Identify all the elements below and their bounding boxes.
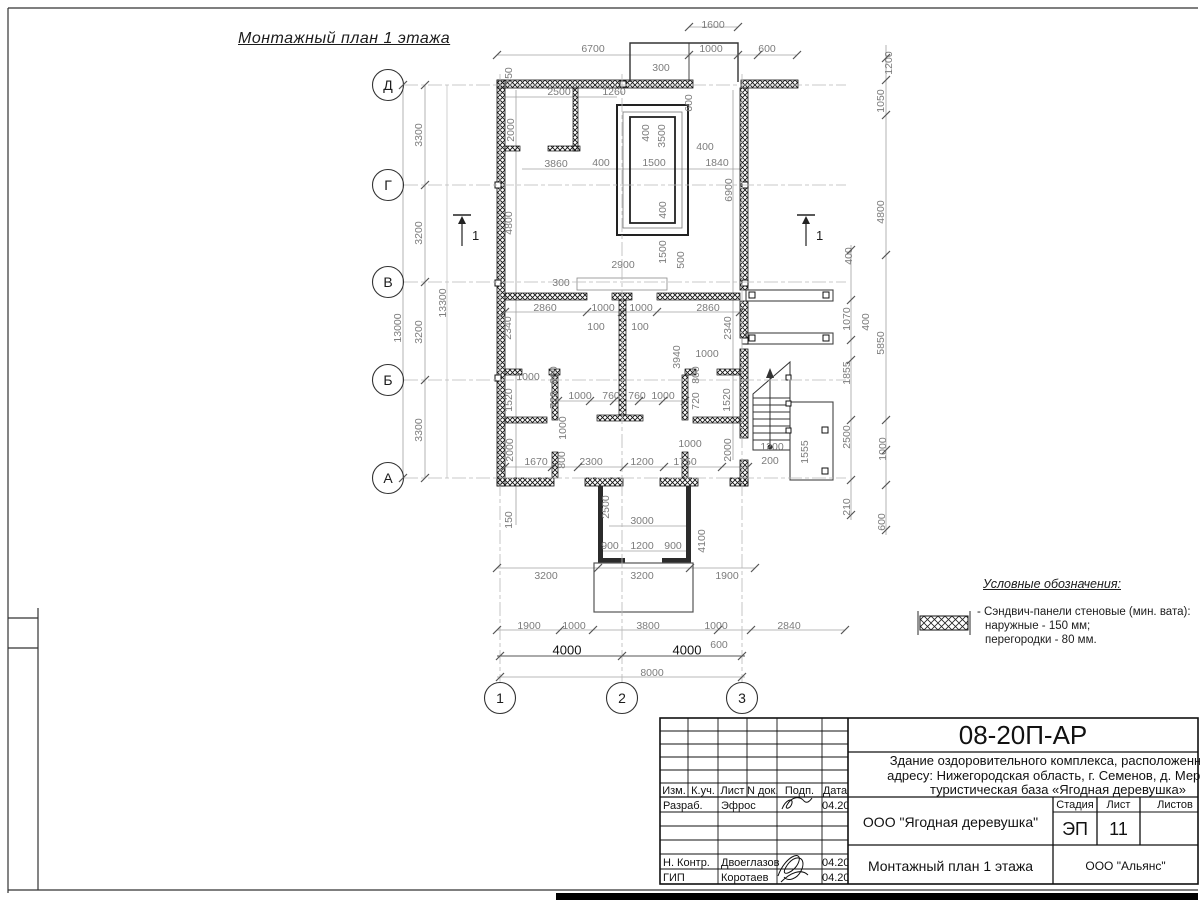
legend-line-1: - Сэндвич-панели стеновые (мин. вата):: [977, 605, 1191, 619]
dimension-label: 900: [601, 540, 619, 552]
dimension-label: 400: [860, 313, 872, 331]
dimension-label: 1000: [591, 302, 615, 314]
dimension-label: 5850: [875, 331, 887, 355]
name-developer: Эфрос: [718, 800, 780, 812]
dimension-label: 2500: [600, 495, 612, 519]
dimension-label: 600: [710, 639, 728, 651]
name-gip: Коротаев: [718, 872, 780, 884]
dimension-label: 6900: [723, 178, 735, 202]
dimension-label: 2900: [611, 259, 635, 271]
dimension-label: 1500: [642, 157, 666, 169]
dimension-label: 6700: [581, 43, 605, 55]
dimension-label: 760: [602, 390, 620, 402]
dimension-label: 1000: [695, 348, 719, 360]
dimension-label: 1750: [673, 456, 697, 468]
dimension-label: 1200: [630, 540, 654, 552]
dimension-label: 600: [876, 513, 888, 531]
dimension-label: 2340: [722, 316, 734, 340]
dimension-label: 1900: [715, 570, 739, 582]
section-arrowhead: [802, 216, 810, 224]
axis-label-А: А: [383, 470, 393, 486]
dimension-label: 400: [657, 201, 669, 219]
project-code: 08-20П-АР: [848, 720, 1198, 751]
dimension-label: 2500: [841, 425, 853, 449]
axis-label-2: 2: [618, 690, 626, 706]
dimension-label: 1670: [524, 456, 548, 468]
dimension-label: 800: [690, 366, 702, 384]
dimension-label: 2300: [579, 456, 603, 468]
sheets-label: Листов: [1140, 799, 1200, 811]
dimension-label: 3200: [534, 570, 558, 582]
dimension-label: 2860: [533, 302, 557, 314]
dimension-label: 1000: [699, 43, 723, 55]
dimension-label: 200: [761, 455, 779, 467]
dimension-label: 600: [758, 43, 776, 55]
dimension-label: 4800: [875, 200, 887, 224]
dimension-label: 500: [675, 251, 687, 269]
sheet-number: 11: [1097, 819, 1140, 840]
dimension-label: 210: [841, 498, 853, 516]
dimension-label: 1555: [799, 440, 811, 464]
dimension-label: 1900: [517, 620, 541, 632]
dimension-label: 900: [664, 540, 682, 552]
dimension-label: 1855: [841, 361, 853, 385]
dimension-label: 1000: [516, 371, 540, 383]
date-gip: 04.20: [822, 872, 848, 884]
axis-label-3: 3: [738, 690, 746, 706]
col-podp: Подп.: [777, 785, 822, 797]
dimension-label: 1840: [705, 157, 729, 169]
col-list: Лист: [718, 785, 747, 797]
role-ncontrol: Н. Контр.: [660, 857, 721, 869]
dimension-label: 1070: [841, 307, 853, 331]
dimension-label: 3860: [544, 158, 568, 170]
dimension-label: 300: [552, 277, 570, 289]
dimension-label: 13300: [437, 288, 449, 317]
dimension-label: 1000: [629, 302, 653, 314]
dimension-label: 1050: [875, 89, 887, 113]
drawing-title: Монтажный план 1 этажа: [238, 30, 450, 48]
legend-heading: Условные обозначения:: [983, 577, 1121, 591]
col-ndok: N док.: [747, 785, 777, 797]
date-developer: 04.20: [822, 800, 848, 812]
project-desc-2: адресу: Нижегородская область, г. Семено…: [848, 769, 1200, 784]
dimension-label: 2340: [502, 316, 514, 340]
date-ncontrol: 04.20: [822, 857, 848, 869]
dimension-label: 150: [503, 67, 515, 85]
client-org: ООО "Ягодная деревушка": [848, 814, 1053, 830]
contractor-org: ООО "Альянс": [1053, 859, 1198, 873]
dimension-label: 720: [690, 392, 702, 410]
legend-line-2: наружные - 150 мм;: [985, 619, 1090, 633]
dimension-label: 2000: [504, 438, 516, 462]
dimension-label: 3940: [671, 345, 683, 369]
col-izm: Изм.: [660, 785, 688, 797]
dimension-label: 1200: [760, 441, 784, 453]
dimension-ticks: [399, 23, 890, 681]
stage-label: Стадия: [1053, 799, 1097, 811]
dimension-label: 2000: [722, 438, 734, 462]
dimension-label: 1000: [562, 620, 586, 632]
dimension-label: 760: [628, 390, 646, 402]
dimension-label: 600: [683, 94, 695, 112]
dimension-label: 4000: [673, 643, 702, 658]
role-developer: Разраб.: [660, 800, 721, 812]
legend-symbol: [918, 611, 970, 635]
dimension-label: 2500: [547, 86, 571, 98]
name-ncontrol: Двоеглазов: [718, 857, 780, 869]
dimension-label: 800: [556, 451, 568, 469]
dimension-label: 720: [548, 391, 560, 409]
dimension-label: 400: [640, 124, 652, 142]
dimension-label: 400: [843, 247, 855, 265]
section-label: 1: [472, 228, 479, 243]
dimension-label: 100: [631, 321, 649, 333]
dimension-label: 100: [587, 321, 605, 333]
dimension-label: 4100: [696, 529, 708, 553]
project-desc-3: туристическая база «Ягодная деревушка»: [848, 783, 1200, 798]
dimension-label: 800: [548, 366, 560, 384]
dimension-label: 1600: [701, 19, 725, 31]
axis-label-Д: Д: [383, 77, 393, 93]
dimension-label: 13000: [392, 313, 404, 342]
dimension-label: 3500: [656, 124, 668, 148]
project-desc-1: Здание оздоровительного комплекса, распо…: [848, 754, 1200, 769]
dimension-label: 2860: [696, 302, 720, 314]
dimension-label: 3200: [413, 221, 425, 245]
dimension-label: 3300: [413, 123, 425, 147]
dimension-label: 1500: [657, 240, 669, 264]
dimension-label: 1260: [602, 86, 626, 98]
dimension-label: 1000: [678, 438, 702, 450]
dimension-label: 4000: [553, 643, 582, 658]
dimension-label: 1000: [568, 390, 592, 402]
dimension-label: 3200: [413, 320, 425, 344]
dimension-label: 3000: [630, 515, 654, 527]
axis-label-Б: Б: [383, 372, 392, 388]
dimension-label: 1520: [503, 388, 515, 412]
dimension-label: 1000: [557, 416, 569, 440]
dimension-label: 3800: [636, 620, 660, 632]
dimension-label: 3300: [413, 418, 425, 442]
dimension-label: 1200: [630, 456, 654, 468]
dimension-label: 150: [503, 511, 515, 529]
col-data: Дата: [822, 785, 848, 797]
doc-name: Монтажный план 1 этажа: [848, 858, 1053, 874]
dimension-label: 400: [696, 141, 714, 153]
dimension-labels: 1600670010006003001502500126060020004003…: [392, 19, 895, 679]
section-arrowhead: [458, 216, 466, 224]
section-label: 1: [816, 228, 823, 243]
axis-label-1: 1: [496, 690, 504, 706]
dimension-label: 300: [652, 62, 670, 74]
dimension-label: 400: [592, 157, 610, 169]
dimension-label: 2000: [505, 118, 517, 142]
drawing-sheet: ДГВБА123 1600670010006003001502500126060…: [0, 0, 1200, 900]
dimension-label: 4800: [503, 211, 515, 235]
stage-value: ЭП: [1053, 819, 1097, 840]
dimension-label: 1520: [721, 388, 733, 412]
role-gip: ГИП: [660, 872, 721, 884]
frame-bottom-bar: [556, 893, 1198, 900]
dimension-label: 1000: [704, 620, 728, 632]
col-kuch: К.уч.: [688, 785, 718, 797]
stairs: [753, 362, 790, 450]
dimension-label: 2840: [777, 620, 801, 632]
dimension-label: 3200: [630, 570, 654, 582]
legend-line-3: перегородки - 80 мм.: [985, 633, 1097, 647]
axis-label-В: В: [383, 274, 392, 290]
pool: [617, 105, 688, 235]
dimension-label: 8000: [640, 667, 664, 679]
axis-label-Г: Г: [384, 177, 392, 193]
sheet-label: Лист: [1097, 799, 1140, 811]
